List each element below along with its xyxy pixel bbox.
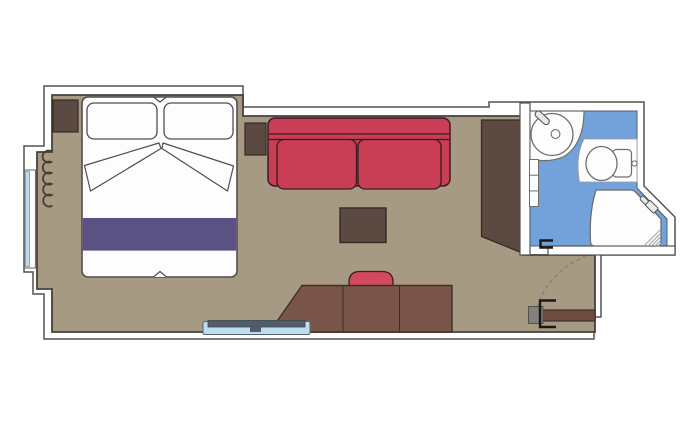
floor-plan	[0, 0, 697, 431]
tv-panel	[203, 321, 310, 335]
tv-screen	[208, 321, 305, 328]
wardrobe	[482, 120, 521, 252]
coffee-table	[340, 208, 386, 243]
shelf-unit	[530, 160, 539, 207]
sofa-cushion-left	[277, 140, 357, 190]
flush-button	[632, 161, 637, 166]
floor-plan-canvas	[0, 0, 697, 431]
pillow-left	[87, 103, 157, 139]
bathroom-left-wall	[520, 103, 530, 255]
window-glass	[26, 172, 30, 267]
nightstand-right	[245, 123, 266, 155]
washbasin-bowl	[531, 114, 573, 156]
balcony-window	[25, 170, 36, 268]
double-bed	[82, 97, 237, 277]
bathroom-area	[520, 103, 675, 255]
bedroom-area	[53, 97, 266, 277]
pillow-right	[164, 103, 233, 139]
nightstand-left	[53, 100, 78, 132]
toilet-unit	[578, 139, 637, 182]
bathroom-bottom-wall	[548, 246, 675, 255]
sofa-cushion-right	[358, 140, 441, 190]
tv-mount	[250, 327, 261, 332]
sofa	[268, 118, 450, 189]
shelf-body	[530, 160, 539, 207]
toilet-bowl	[586, 147, 617, 181]
duvet-runner	[83, 218, 236, 251]
